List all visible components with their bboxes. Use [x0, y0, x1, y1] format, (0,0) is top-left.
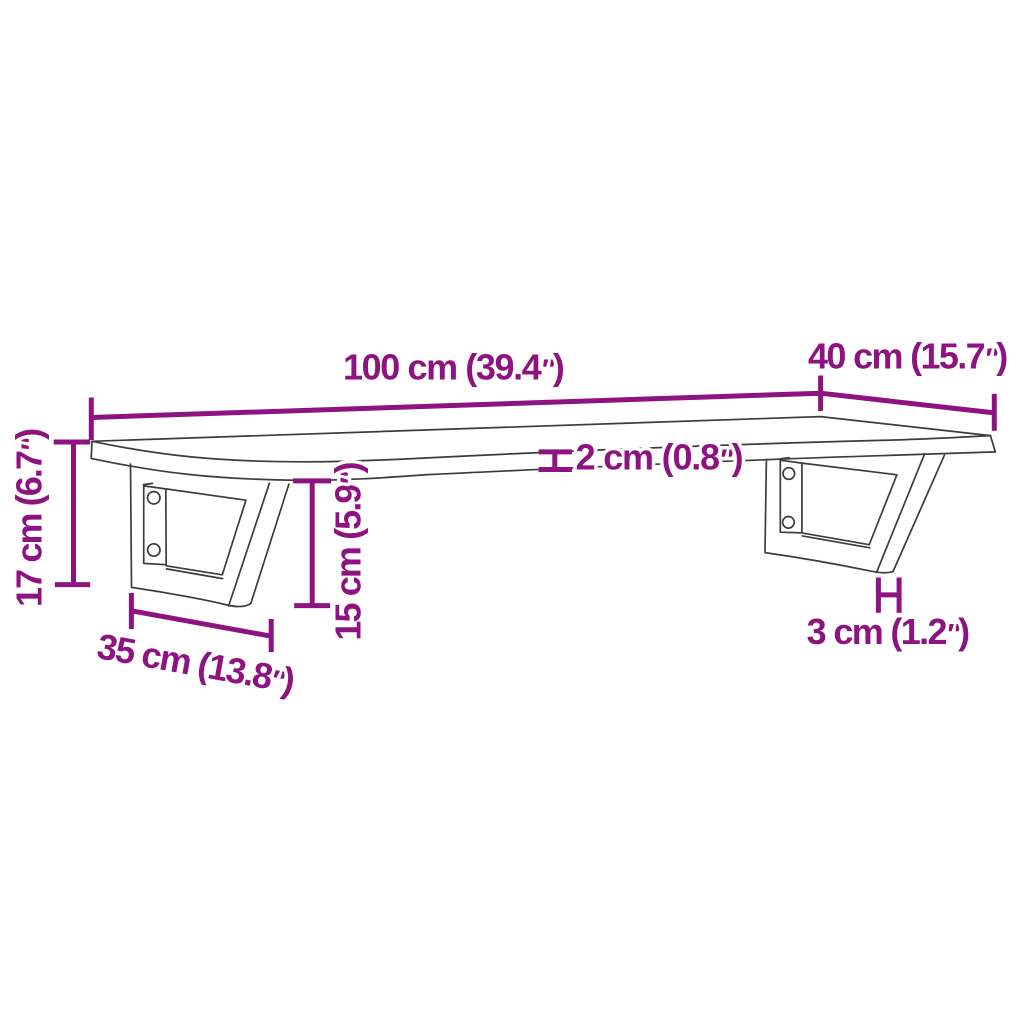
svg-text:2 cm (0.8″): 2 cm (0.8″): [576, 436, 743, 477]
svg-text:3 cm (1.2″): 3 cm (1.2″): [807, 611, 970, 652]
svg-text:40 cm (15.7″): 40 cm (15.7″): [808, 336, 1007, 377]
svg-text:17 cm (6.7″): 17 cm (6.7″): [9, 429, 50, 607]
svg-text:15 cm (5.9″): 15 cm (5.9″): [328, 462, 369, 640]
svg-text:100 cm (39.4″): 100 cm (39.4″): [343, 347, 564, 388]
